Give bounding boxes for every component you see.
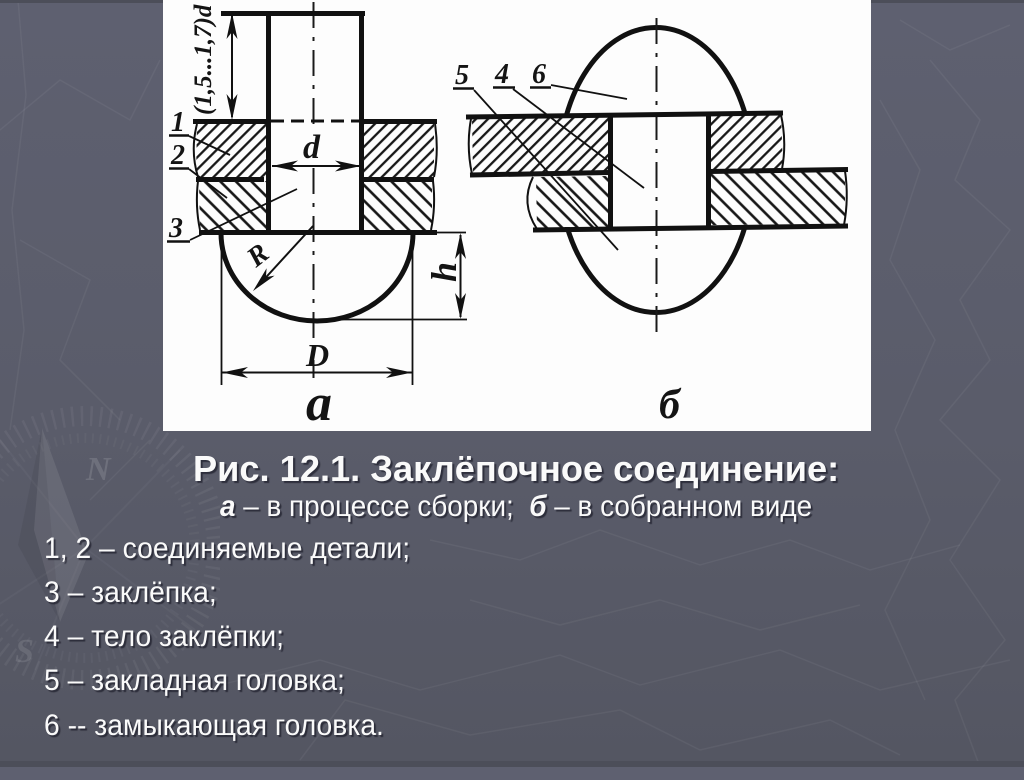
svg-text:б: б <box>659 382 682 428</box>
svg-text:2: 2 <box>170 140 185 171</box>
svg-text:5: 5 <box>455 60 469 91</box>
svg-text:(1,5...1,7)d: (1,5...1,7)d <box>190 4 217 115</box>
svg-text:1: 1 <box>171 107 185 138</box>
svg-text:d: d <box>303 129 321 166</box>
svg-text:4: 4 <box>494 59 509 90</box>
svg-text:D: D <box>305 337 329 373</box>
svg-text:h: h <box>424 262 464 282</box>
svg-text:6: 6 <box>532 59 546 90</box>
svg-text:а: а <box>306 375 332 432</box>
svg-text:3: 3 <box>168 213 183 244</box>
